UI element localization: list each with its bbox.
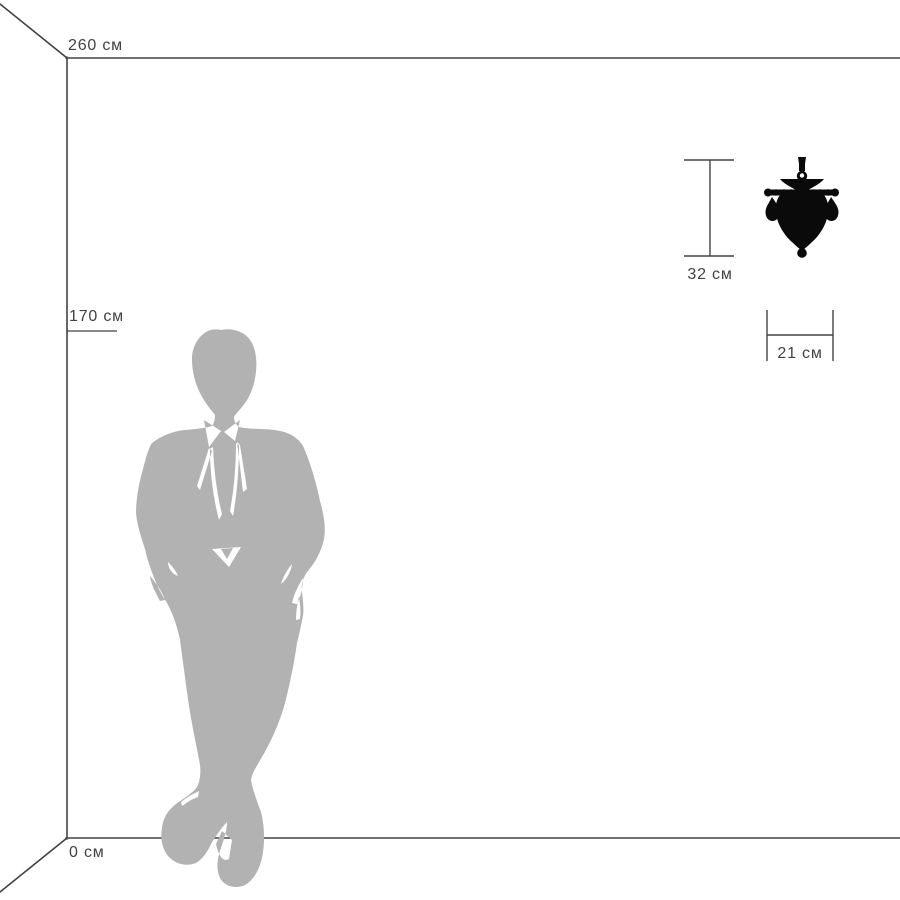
sconce-bottom-ball xyxy=(797,248,807,258)
dimension-diagram: 260 см 170 см 0 см 32 см 21 см xyxy=(0,0,900,900)
corner-diagonal-top-left xyxy=(0,4,67,58)
sconce-body xyxy=(776,193,829,251)
sconce-canopy xyxy=(780,179,824,190)
room-outline xyxy=(0,4,900,892)
floor-level-label: 0 см xyxy=(69,844,105,862)
person-silhouette xyxy=(136,329,325,887)
product-height-label: 32 см xyxy=(660,266,760,284)
product-width-label: 21 см xyxy=(750,345,850,363)
sconce-stem xyxy=(798,157,806,171)
diagram-canvas xyxy=(0,0,900,900)
person-height-label: 170 см xyxy=(69,308,124,326)
corner-diagonal-bottom-left xyxy=(0,838,67,892)
product-silhouette xyxy=(764,157,839,258)
ceiling-height-label: 260 см xyxy=(68,37,123,55)
product-height-indicator xyxy=(684,160,734,256)
